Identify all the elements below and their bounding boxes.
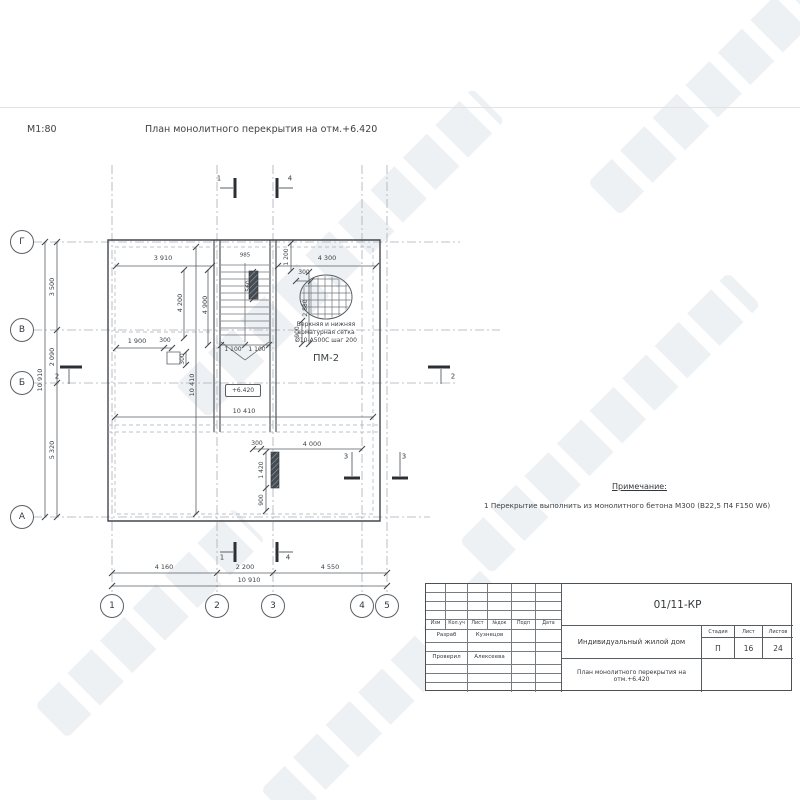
stamp-header: №док [488,620,512,630]
title-block: Изм Кол.уч Лист №док Подп Дата Разраб Ку… [425,583,792,691]
dim-label: 4 900 [202,296,209,315]
dim-label: 3 910 [154,255,173,262]
dim-label: 10 910 [37,369,44,392]
dim-label: 4 [288,176,292,183]
dim-label: 300 [298,270,309,276]
stamp-sheet-title: План монолитного перекрытия на отм.+6.42… [561,659,701,692]
dim-label: 300 [159,338,170,344]
stamp-role: Разраб [426,630,468,643]
drawing-sheet: М1:80 План монолитного перекрытия на отм… [0,0,800,800]
dim-label: 10 410 [233,408,256,415]
dim-label: 5 320 [49,441,56,460]
dim-label: 2 880 [303,299,309,316]
dim-label: 3 [402,454,406,461]
dim-label: 560 [246,280,252,291]
stamp-header: Подп [512,620,536,630]
dim-label: 2 [451,374,455,381]
stamp-header: Изм [426,620,446,630]
stamp-stage-value: П [701,638,734,659]
dim-label: ПМ-2 [313,354,339,364]
axis-marker: В [10,318,34,342]
dim-label: Верхняя и нижняя [297,322,355,328]
notes-heading: Примечание: [612,482,667,491]
axis-marker: 3 [261,594,285,618]
stamp-role: Проверил [426,652,468,665]
axis-marker: А [10,505,34,529]
dim-label: 4 300 [318,255,337,262]
stamp-name: Алексеева [468,652,512,665]
stamp-sheets-value: 24 [762,638,793,659]
stamp-stage-label: Стадия [701,626,734,638]
scale-label: М1:80 [27,124,57,135]
dim-label: 10 410 [189,374,196,397]
stamp-object-name: Индивидуальный жилой дом [561,626,701,659]
dim-label: 1 200 [284,248,290,265]
dim-label: 1 900 [128,338,147,345]
dim-label: 1 420 [259,461,265,478]
stamp-header: Лист [468,620,488,630]
stamp-sheets-label: Листов [762,626,793,638]
dim-label: 4 200 [177,294,184,313]
dim-label: 300 [251,441,262,447]
stamp-sheet-label: Лист [734,626,762,638]
dim-label: 1 [220,555,224,562]
stamp-sheet-value: 16 [734,638,762,659]
dim-label: 3 500 [49,278,56,297]
dim-label: 900 [259,494,265,505]
dim-label: 1 [217,176,221,183]
dim-label: 2 090 [49,348,56,367]
dim-label: 985 [240,253,251,259]
dim-label: 2 [55,374,59,381]
axis-marker: 4 [350,594,374,618]
dim-label: 4 000 [303,441,322,448]
title-block-left-grid: Изм Кол.уч Лист №док Подп Дата Разраб Ку… [426,584,561,690]
stamp-doc-number: 01/11-КР [561,584,793,626]
axis-marker: Г [10,230,34,254]
dim-label: 4 550 [321,564,340,571]
dim-label: 1 100 [224,347,241,353]
stamp-name: Кузнецов [468,630,512,643]
dim-label: 1 100 [248,347,265,353]
axis-marker: 1 [100,594,124,618]
notes-item: 1 Перекрытие выполнить из монолитного бе… [484,501,770,510]
dim-label: 4 [286,555,290,562]
dim-label: 4 160 [155,564,174,571]
dim-label: 300 [180,353,186,364]
axis-marker: 2 [205,594,229,618]
page-title: План монолитного перекрытия на отм.+6.42… [145,124,377,135]
dim-label: 10 910 [238,577,261,584]
dim-label: Ø10-А500С шаг 200 [295,338,357,344]
elevation-mark: +6.420 [225,384,261,397]
axis-marker: 5 [375,594,399,618]
axis-marker: Б [10,371,34,395]
dim-label: 2 200 [236,564,255,571]
stamp-header: Дата [536,620,561,630]
dim-label: арматурная сетка [297,330,354,336]
dim-label: 3 [344,454,348,461]
stamp-org-cell [701,659,793,692]
stamp-header: Кол.уч [446,620,468,630]
